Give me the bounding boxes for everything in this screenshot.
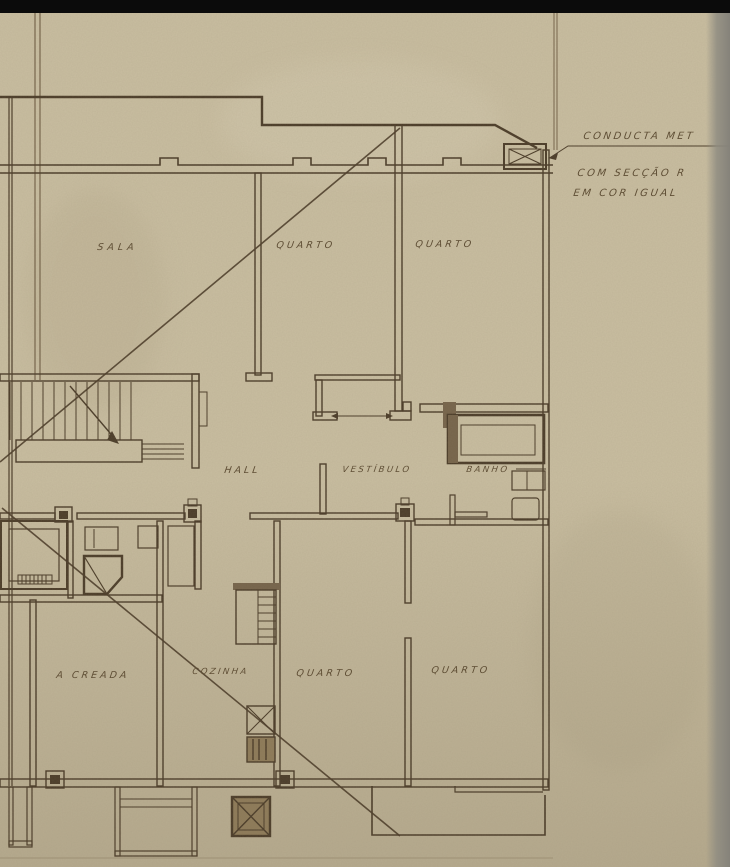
- scan-edge-strip: [706, 0, 730, 867]
- top-film-strip: [0, 0, 730, 13]
- scanned-drawing: SALA QUARTO QUARTO HALL VESTÍBULO BANHO …: [0, 0, 730, 867]
- floor-plan-svg: SALA QUARTO QUARTO HALL VESTÍBULO BANHO …: [0, 0, 730, 867]
- paper-grain: [0, 0, 730, 867]
